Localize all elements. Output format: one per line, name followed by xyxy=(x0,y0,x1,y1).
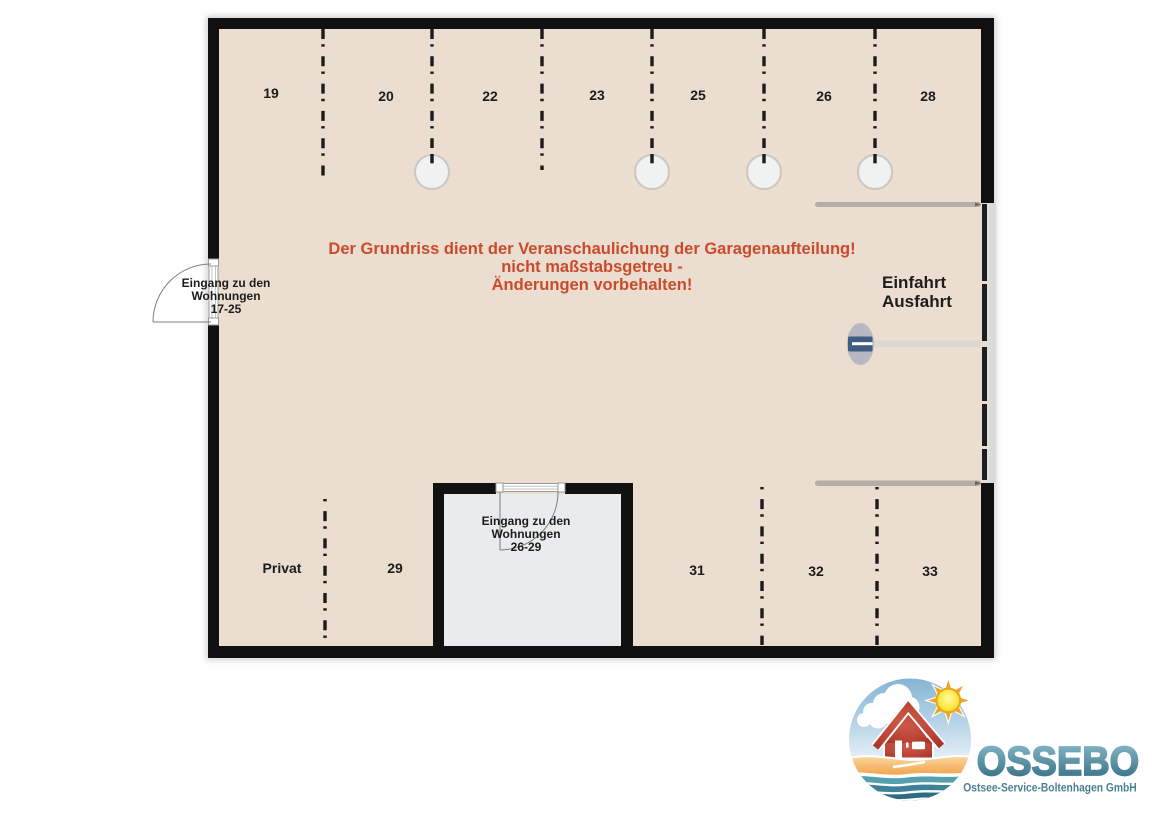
svg-text:Ostsee-Service-Boltenhagen Gmb: Ostsee-Service-Boltenhagen GmbH xyxy=(963,780,1136,794)
svg-text:OSSEBO: OSSEBO xyxy=(977,738,1139,784)
